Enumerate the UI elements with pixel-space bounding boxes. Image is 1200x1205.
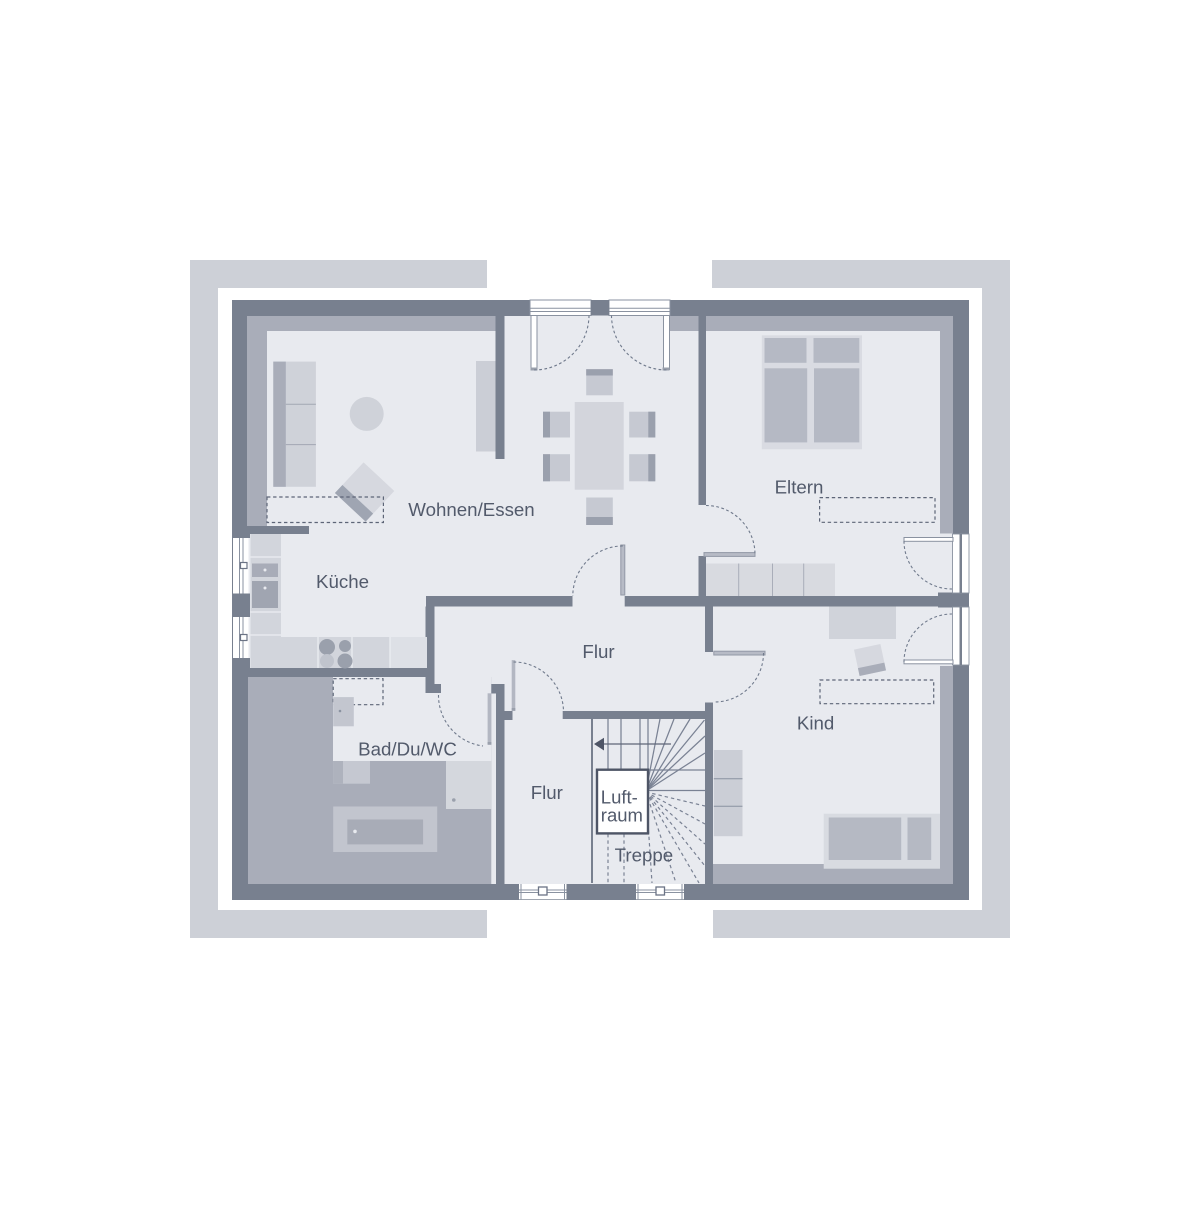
svg-text:Bad/Du/WC: Bad/Du/WC — [358, 739, 457, 760]
svg-text:Flur: Flur — [582, 641, 614, 662]
svg-text:Treppe: Treppe — [615, 845, 674, 866]
svg-text:Kind: Kind — [797, 713, 834, 734]
svg-text:Flur: Flur — [531, 782, 563, 803]
svg-text:Wohnen/Essen: Wohnen/Essen — [408, 499, 534, 520]
svg-text:Eltern: Eltern — [775, 477, 824, 498]
svg-text:Küche: Küche — [316, 571, 369, 592]
svg-text:raum: raum — [601, 805, 643, 826]
